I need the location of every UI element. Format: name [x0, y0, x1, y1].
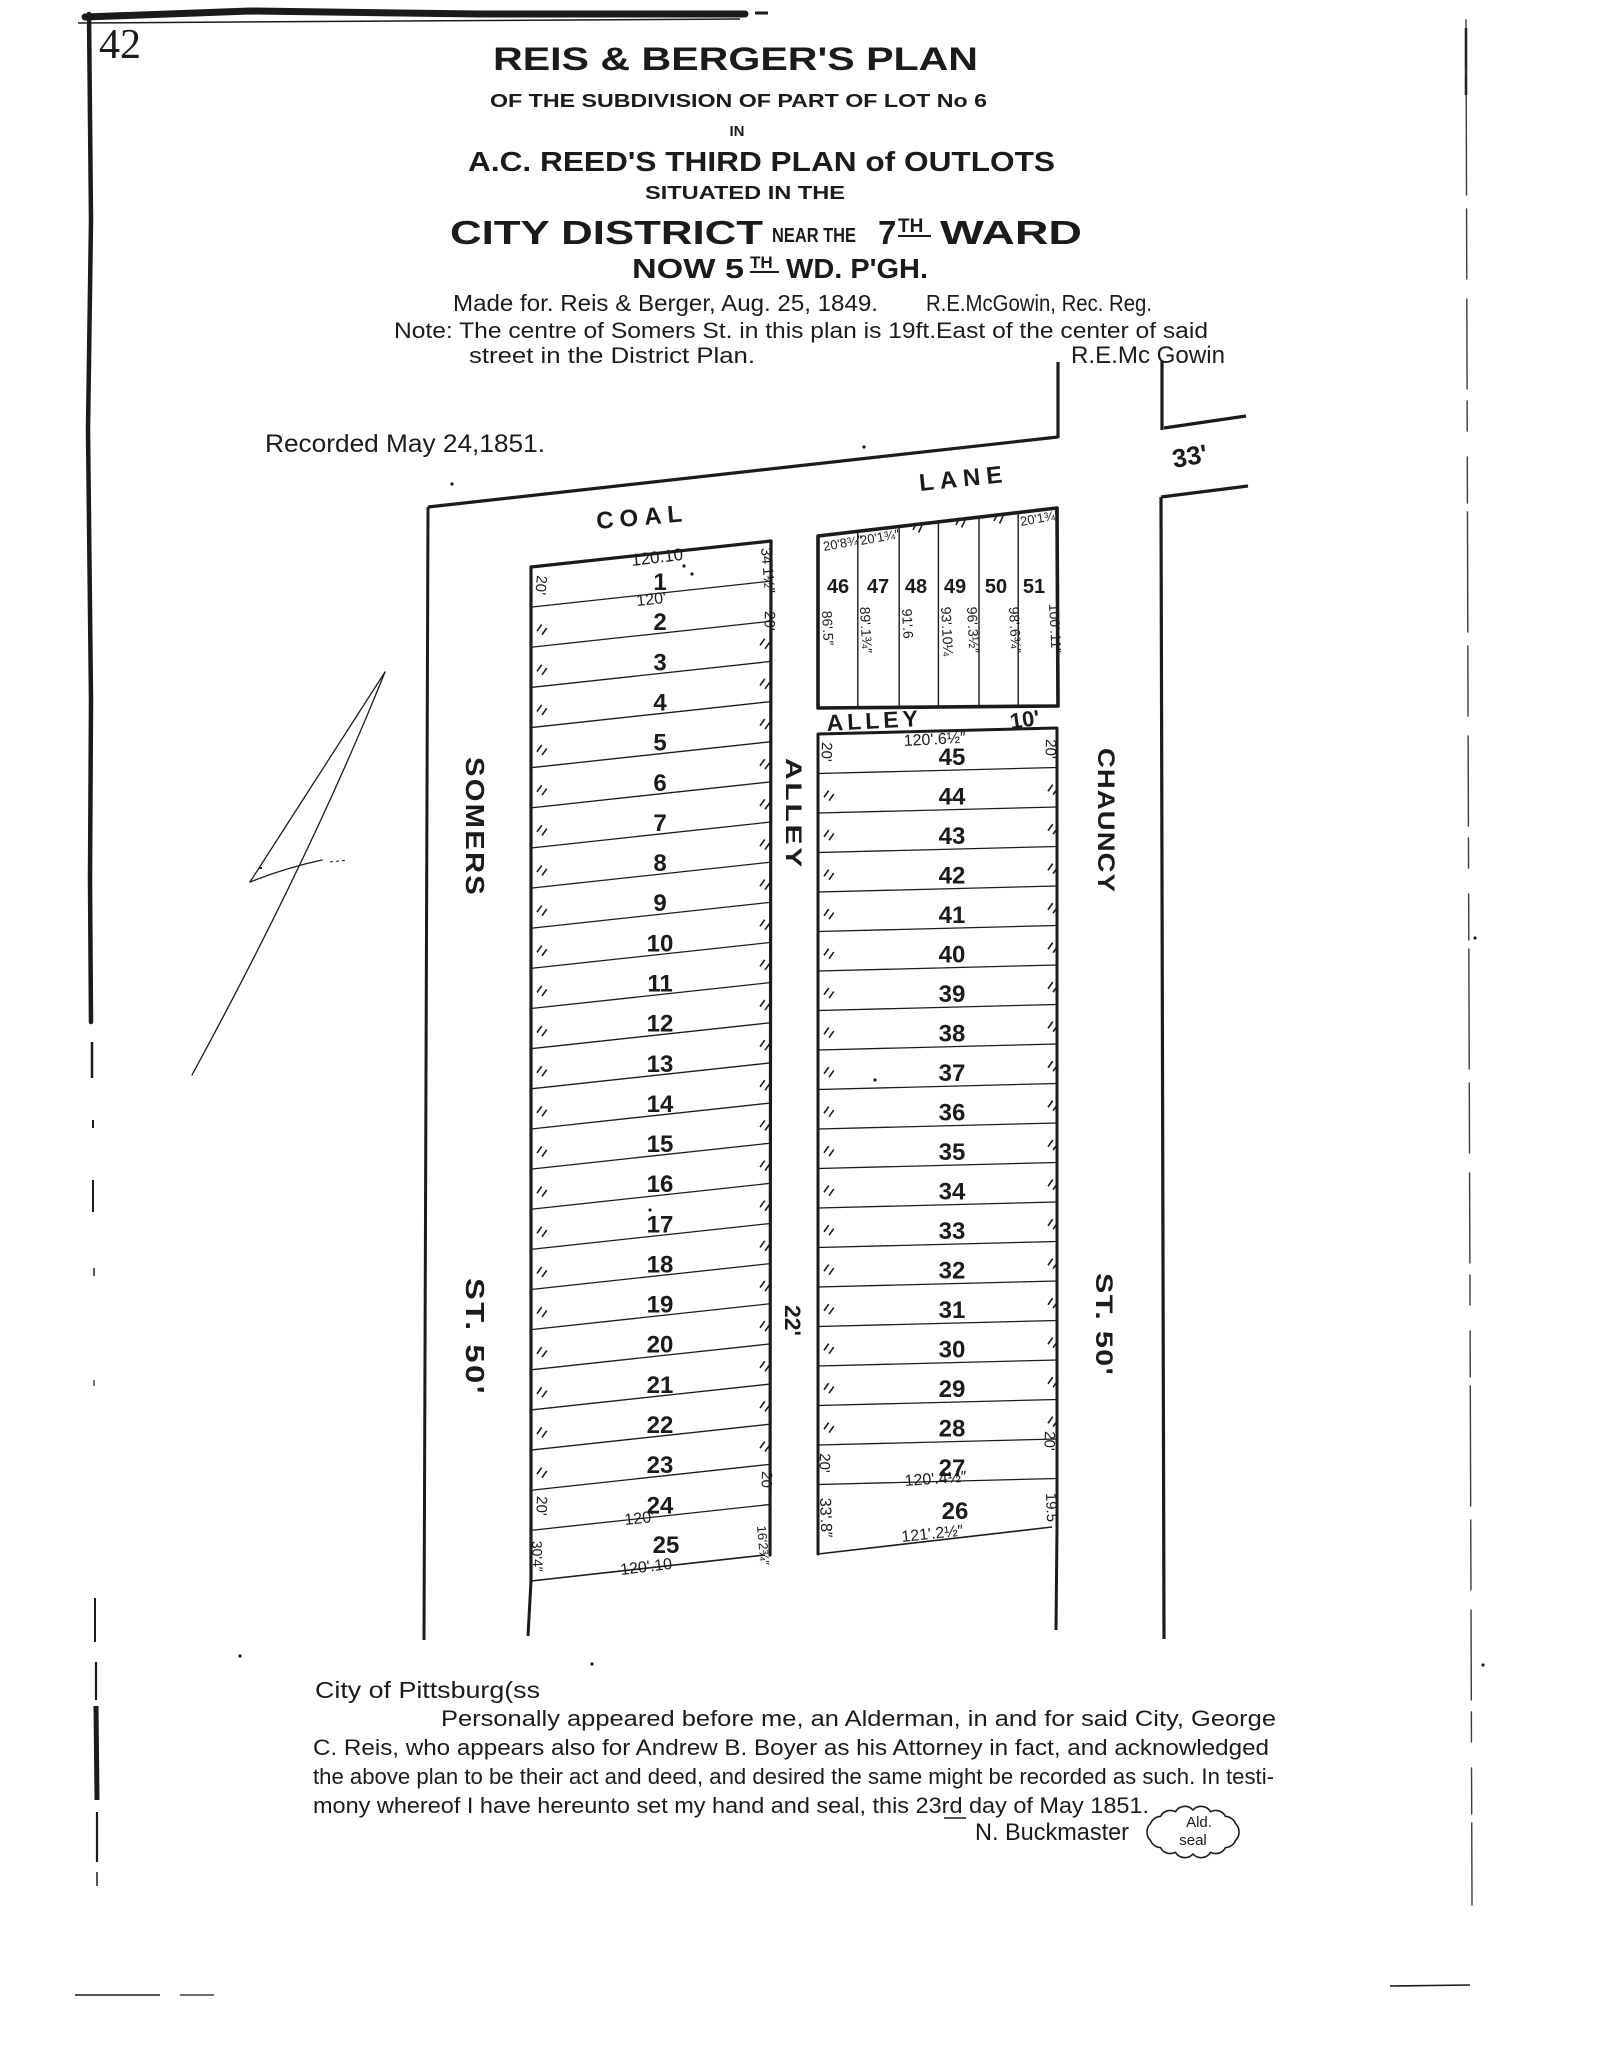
svg-text:51: 51	[1023, 576, 1045, 598]
svg-text:City of Pittsburg(ss: City of Pittsburg(ss	[315, 1677, 540, 1703]
svg-text:13: 13	[647, 1051, 674, 1078]
svg-text:14: 14	[647, 1091, 674, 1118]
svg-text:36: 36	[939, 1099, 966, 1126]
svg-text:21: 21	[647, 1372, 674, 1399]
svg-text:20': 20'	[760, 611, 778, 631]
svg-text:4: 4	[653, 689, 667, 716]
svg-text:100'.11″: 100'.11″	[1046, 603, 1065, 653]
svg-text:TH: TH	[750, 253, 773, 272]
svg-text:C. Reis, who appears also for: C. Reis, who appears also for Andrew B. …	[313, 1735, 1269, 1760]
svg-text:NOW 5: NOW 5	[632, 253, 744, 284]
svg-text:33: 33	[939, 1218, 966, 1245]
svg-text:20': 20'	[817, 742, 835, 762]
svg-text:TH: TH	[898, 216, 923, 237]
svg-text:34: 34	[939, 1178, 966, 1205]
svg-text:10: 10	[647, 930, 674, 957]
svg-text:20': 20'	[531, 575, 550, 596]
svg-text:23: 23	[647, 1452, 674, 1479]
svg-text:20': 20'	[532, 1496, 550, 1516]
svg-text:16: 16	[647, 1171, 674, 1198]
svg-text:ST. 50': ST. 50'	[1090, 1273, 1117, 1376]
svg-text:Personally appeared before me,: Personally appeared before me, an Alderm…	[441, 1706, 1276, 1731]
svg-text:CHAUNCY: CHAUNCY	[1092, 748, 1119, 893]
svg-text:38: 38	[939, 1020, 966, 1047]
svg-text:Made for. Reis & Berger, Aug.: Made for. Reis & Berger, Aug. 25, 1849.	[453, 290, 878, 316]
svg-text:48: 48	[905, 576, 927, 598]
svg-text:15: 15	[647, 1131, 674, 1158]
svg-text:SOMERS: SOMERS	[460, 757, 490, 897]
svg-text:29: 29	[939, 1376, 966, 1403]
svg-text:19: 19	[647, 1292, 674, 1319]
svg-text:20: 20	[647, 1332, 674, 1359]
svg-text:32: 32	[939, 1257, 966, 1284]
svg-text:N. Buckmaster: N. Buckmaster	[975, 1819, 1129, 1846]
svg-text:89'.1¾″: 89'.1¾″	[857, 606, 875, 653]
svg-text:Recorded May 24,1851.: Recorded May 24,1851.	[265, 430, 545, 458]
svg-text:35: 35	[939, 1139, 966, 1166]
svg-text:Ald.: Ald.	[1186, 1814, 1212, 1831]
svg-text:IN: IN	[730, 123, 745, 140]
svg-text:43: 43	[939, 823, 966, 850]
svg-text:12: 12	[647, 1011, 674, 1038]
svg-text:33': 33'	[1170, 438, 1210, 474]
svg-text:A.C. REED'S THIRD PLAN of OUTL: A.C. REED'S THIRD PLAN of OUTLOTS	[468, 146, 1055, 177]
svg-text:46: 46	[827, 576, 849, 598]
svg-text:11: 11	[647, 970, 672, 997]
svg-text:86'.5″: 86'.5″	[819, 610, 837, 646]
svg-text:OF THE SUBDIVISION OF PART OF: OF THE SUBDIVISION OF PART OF LOT No 6	[490, 91, 987, 111]
svg-text:9: 9	[653, 890, 666, 917]
svg-text:25: 25	[653, 1532, 680, 1559]
svg-text:47: 47	[867, 576, 889, 598]
svg-text:41: 41	[939, 902, 966, 929]
svg-text:R.E.Mc Gowin: R.E.Mc Gowin	[1071, 342, 1225, 369]
svg-text:93'.10¼: 93'.10¼	[938, 606, 957, 656]
svg-text:31: 31	[939, 1297, 966, 1324]
svg-text:8: 8	[653, 850, 666, 877]
svg-text:CITY DISTRICT: CITY DISTRICT	[450, 214, 763, 251]
svg-text:49: 49	[944, 576, 966, 598]
svg-text:WD. P'GH.: WD. P'GH.	[786, 253, 928, 284]
svg-text:96'.3½″: 96'.3½″	[964, 606, 982, 653]
svg-text:NEAR THE: NEAR THE	[772, 225, 856, 247]
svg-text:WARD: WARD	[940, 214, 1082, 251]
svg-text:120': 120'	[624, 1509, 655, 1529]
svg-text:SITUATED IN THE: SITUATED IN THE	[645, 183, 845, 203]
svg-text:20': 20'	[815, 1453, 833, 1473]
svg-text:ST. 50': ST. 50'	[460, 1278, 490, 1396]
svg-text:50: 50	[985, 576, 1007, 598]
svg-text:17: 17	[647, 1211, 674, 1238]
svg-text:Note: The centre of Somers St: Note: The centre of Somers St. in this p…	[394, 318, 1208, 343]
svg-text:28: 28	[939, 1415, 966, 1442]
svg-text:20': 20'	[1040, 1431, 1058, 1451]
svg-text:120': 120'	[636, 590, 667, 610]
svg-text:ALLEY: ALLEY	[781, 758, 806, 870]
svg-text:91'.6: 91'.6	[899, 608, 917, 639]
svg-text:30'4″: 30'4″	[529, 1541, 546, 1573]
svg-text:22: 22	[647, 1412, 674, 1439]
svg-text:R.E.McGowin, Rec. Reg.: R.E.McGowin, Rec. Reg.	[926, 290, 1152, 316]
svg-text:40: 40	[939, 941, 966, 968]
svg-text:the above plan to be their act: the above plan to be their act and deed,…	[313, 1764, 1274, 1789]
svg-text:30: 30	[939, 1336, 966, 1363]
svg-text:mony whereof I have hereunto s: mony whereof I have hereunto set my hand…	[313, 1793, 1149, 1818]
svg-text:22': 22'	[780, 1305, 805, 1336]
svg-text:42: 42	[99, 22, 141, 68]
svg-text:street in the District Plan.: street in the District Plan.	[469, 343, 755, 368]
svg-text:seal: seal	[1179, 1832, 1207, 1849]
svg-text:39: 39	[939, 981, 966, 1008]
svg-text:3: 3	[653, 649, 666, 676]
svg-text:20': 20'	[1041, 739, 1059, 759]
svg-text:26: 26	[942, 1498, 969, 1525]
svg-text:19.5: 19.5	[1042, 1493, 1060, 1523]
svg-text:5: 5	[653, 730, 666, 757]
svg-text:98'.6¾″: 98'.6¾″	[1006, 606, 1024, 653]
svg-text:7: 7	[878, 214, 896, 251]
svg-text:2: 2	[653, 609, 666, 636]
svg-text:7: 7	[653, 810, 666, 837]
svg-text:REIS & BERGER'S PLAN: REIS & BERGER'S PLAN	[493, 41, 978, 77]
svg-text:120'.6½″: 120'.6½″	[903, 730, 966, 750]
svg-text:33'.8″: 33'.8″	[816, 1498, 834, 1539]
svg-text:44: 44	[939, 783, 966, 810]
svg-text:42: 42	[939, 862, 966, 889]
svg-text:18: 18	[647, 1251, 674, 1278]
svg-text:6: 6	[653, 770, 666, 797]
svg-text:20': 20'	[757, 1471, 775, 1491]
svg-text:37: 37	[939, 1060, 966, 1087]
